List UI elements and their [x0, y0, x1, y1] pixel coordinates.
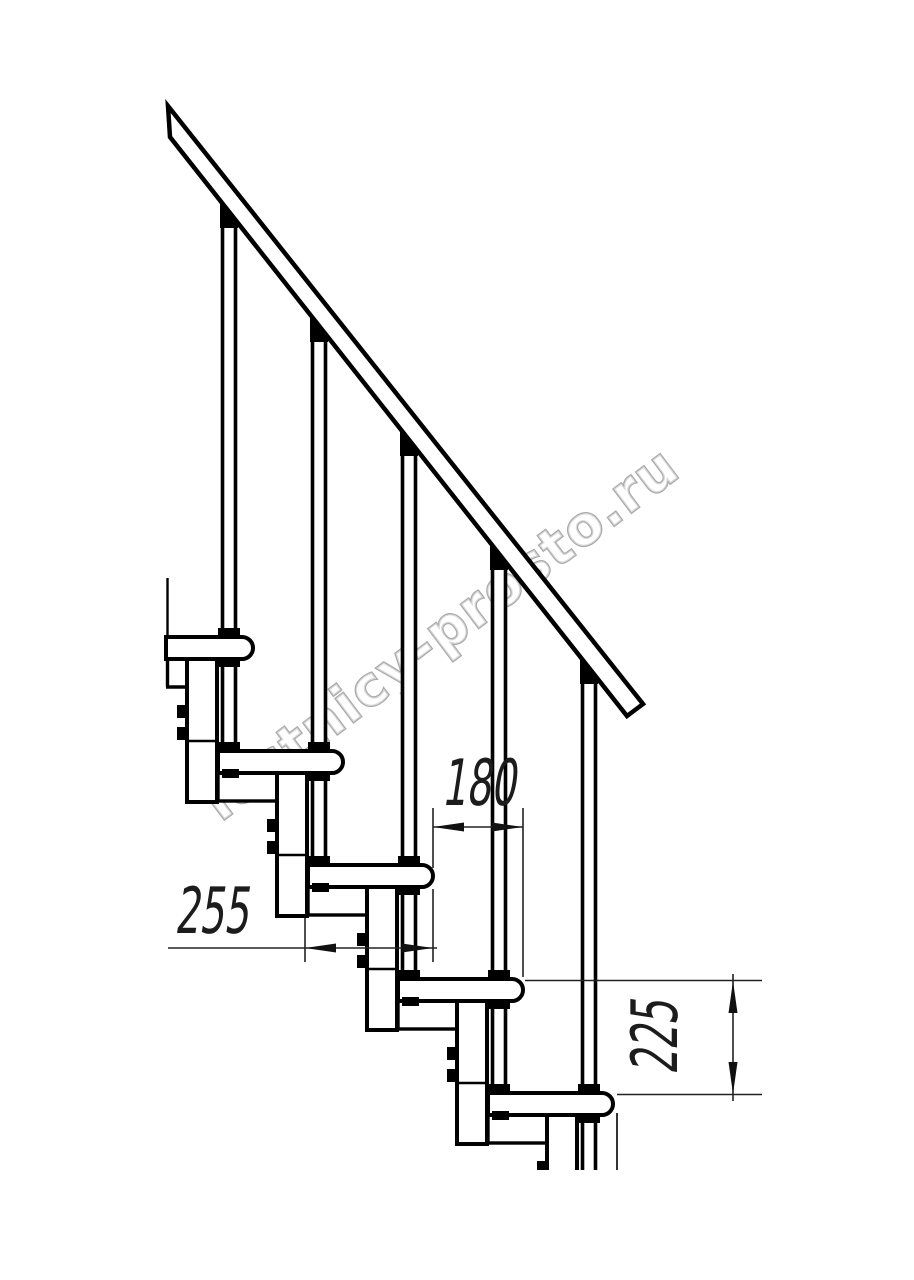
box-bolt-icon	[447, 1047, 457, 1060]
support-rod-4	[493, 1001, 506, 1093]
box-bolt-icon	[357, 955, 367, 968]
baluster-1	[218, 200, 240, 637]
support-rod-2	[313, 773, 326, 865]
baluster-mount-icon	[578, 1084, 600, 1093]
support-box-4	[457, 1001, 487, 1144]
box-bolt-icon	[267, 841, 277, 854]
tread-bolt-icon	[222, 769, 239, 778]
tread-bolt-icon	[492, 1111, 509, 1120]
support-rod-5	[583, 1115, 596, 1175]
support-box-3	[367, 887, 397, 1030]
support-box-1	[187, 659, 217, 802]
baluster-mount-icon	[488, 970, 510, 979]
dimension-180	[433, 808, 523, 977]
baluster-mount-icon	[218, 628, 240, 637]
baluster-mount-icon	[398, 856, 420, 865]
dim-arrow-right-icon	[402, 944, 433, 953]
support-box-5	[547, 1115, 577, 1275]
baluster-5	[578, 656, 600, 1093]
dim-arrow-down-icon	[729, 1062, 738, 1094]
dim-arrow-left-icon	[433, 823, 464, 832]
support-rod-1	[223, 659, 236, 751]
dim-arrow-left-icon	[305, 944, 336, 953]
staircase-drawing: lestnicy-prosto.ru	[0, 0, 914, 1280]
box-bolt-icon	[357, 933, 367, 946]
stair-module-5	[488, 1093, 617, 1275]
box-bolt-icon	[447, 1069, 457, 1082]
tread-bolt-icon	[402, 997, 419, 1006]
dim-label-225: 225	[617, 992, 692, 1077]
baluster-2	[308, 314, 330, 751]
box-bolt-icon	[267, 819, 277, 832]
box-bolt-icon	[177, 727, 187, 740]
box-bolt-icon	[177, 705, 187, 718]
dim-label-180: 180	[439, 745, 524, 820]
drawing-geometry: 180 255 225	[166, 106, 762, 1275]
box-bolt-icon	[537, 1161, 547, 1174]
baluster-mount-icon	[308, 742, 330, 751]
dim-arrow-right-icon	[492, 823, 523, 832]
tread-1	[166, 637, 253, 659]
support-box-2	[277, 773, 307, 916]
support-rod-3	[403, 887, 416, 979]
dim-arrow-up-icon	[729, 981, 738, 1013]
staircase-drawing-page: lestnicy-prosto.ru	[0, 0, 914, 1280]
tread-bolt-icon	[312, 883, 329, 892]
dim-label-255: 255	[172, 873, 257, 948]
baluster-3	[398, 428, 420, 865]
